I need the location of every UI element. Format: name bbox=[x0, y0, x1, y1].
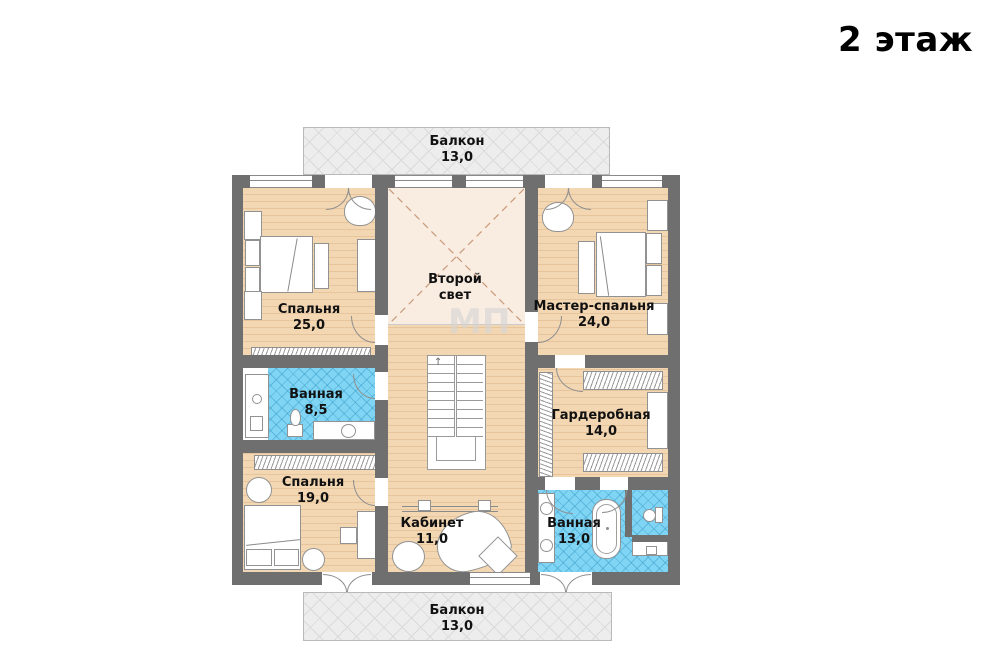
door-opening bbox=[555, 355, 585, 368]
wall bbox=[625, 490, 632, 537]
door-opening bbox=[600, 477, 628, 490]
wall bbox=[592, 572, 680, 585]
nightstand bbox=[647, 200, 668, 231]
wall bbox=[243, 440, 375, 453]
wall bbox=[525, 342, 538, 355]
room-label-balcony-top: Балкон 13,0 bbox=[430, 134, 485, 166]
bed-pillow bbox=[246, 549, 272, 566]
stool bbox=[302, 548, 325, 571]
toilet bbox=[655, 507, 663, 523]
room-name: Спальня bbox=[282, 475, 344, 491]
room-name: Спальня bbox=[278, 302, 340, 318]
bed-pillow bbox=[245, 240, 260, 266]
wall bbox=[232, 175, 243, 585]
washer bbox=[250, 416, 263, 431]
room-area: 19,0 bbox=[282, 491, 344, 507]
room-label-bathroom-85: Ванная 8,5 bbox=[289, 387, 343, 419]
bench bbox=[314, 243, 329, 289]
wall bbox=[375, 345, 388, 355]
room-name: Ванная bbox=[547, 516, 601, 532]
stairs-up-arrow-icon: ↑ bbox=[434, 357, 442, 368]
stair-flight bbox=[428, 356, 455, 437]
wall bbox=[538, 477, 545, 490]
stair-flight bbox=[456, 356, 483, 437]
room-label-wardrobe: Гардеробная 14,0 bbox=[551, 408, 650, 440]
shower-head bbox=[646, 546, 657, 555]
wall bbox=[525, 368, 538, 572]
wall bbox=[530, 572, 540, 585]
wall bbox=[243, 355, 388, 368]
bathtub-drain bbox=[606, 527, 609, 530]
door-opening bbox=[375, 372, 388, 400]
bed-pillow bbox=[646, 233, 662, 264]
wall bbox=[372, 175, 395, 188]
window bbox=[470, 572, 530, 585]
room-name: Балкон bbox=[430, 603, 485, 619]
room-area: 13,0 bbox=[547, 532, 601, 548]
stair-landing bbox=[436, 437, 476, 461]
shelf-bracket bbox=[418, 500, 431, 511]
boiler-dial bbox=[252, 394, 262, 404]
room-label-second-light: Второй свет bbox=[428, 272, 482, 304]
bed-pillow bbox=[245, 267, 260, 293]
room-area: 13,0 bbox=[430, 150, 485, 166]
room-label-balcony-bottom: Балкон 13,0 bbox=[430, 603, 485, 635]
staircase: ↑ bbox=[427, 355, 486, 470]
page-title: 2 этаж bbox=[838, 20, 973, 60]
wall bbox=[575, 477, 600, 490]
wall bbox=[232, 572, 322, 585]
wall bbox=[668, 175, 680, 585]
bed bbox=[260, 236, 313, 293]
watermark: МП bbox=[448, 302, 510, 342]
room-name: Гардеробная bbox=[551, 408, 650, 424]
room-area: 25,0 bbox=[278, 318, 340, 334]
shelf-bracket bbox=[478, 500, 491, 511]
pouf bbox=[246, 477, 272, 503]
room-area: 14,0 bbox=[551, 424, 650, 440]
nightstand bbox=[244, 291, 262, 320]
boiler-unit bbox=[245, 374, 269, 438]
window bbox=[395, 175, 452, 188]
floor-plan: 2 этаж МП МП bbox=[0, 0, 1000, 667]
wardrobe-rail bbox=[254, 455, 382, 470]
wall bbox=[375, 506, 388, 572]
bed-pillow bbox=[274, 549, 299, 566]
toilet-bowl bbox=[643, 509, 656, 522]
room-label-bedroom-19: Спальня 19,0 bbox=[282, 475, 344, 507]
wardrobe-rail bbox=[583, 453, 663, 472]
room-area: 24,0 bbox=[534, 315, 655, 331]
wall bbox=[592, 175, 602, 188]
sink bbox=[341, 424, 356, 438]
door-opening bbox=[375, 315, 388, 345]
wall bbox=[372, 572, 470, 585]
room-name: Балкон bbox=[430, 134, 485, 150]
wall bbox=[523, 175, 545, 188]
wall bbox=[585, 355, 668, 368]
door-opening bbox=[325, 175, 372, 188]
bed-pillow bbox=[646, 265, 662, 296]
door-opening bbox=[545, 477, 575, 490]
room-area: 8,5 bbox=[289, 403, 343, 419]
wardrobe-rail bbox=[583, 371, 663, 390]
window bbox=[466, 175, 523, 188]
dresser bbox=[357, 239, 377, 292]
wall bbox=[375, 400, 388, 478]
wall bbox=[452, 175, 466, 188]
bench bbox=[578, 241, 595, 294]
window bbox=[250, 175, 312, 188]
window bbox=[602, 175, 662, 188]
wall bbox=[525, 188, 538, 312]
room-name: Ванная bbox=[289, 387, 343, 403]
room-label-master-bedroom: Мастер-спальня 24,0 bbox=[534, 299, 655, 331]
room-area: 11,0 bbox=[401, 532, 464, 548]
room-label-bedroom-25: Спальня 25,0 bbox=[278, 302, 340, 334]
room-label-bathroom-13: Ванная 13,0 bbox=[547, 516, 601, 548]
door-opening bbox=[545, 175, 592, 188]
wall bbox=[628, 477, 668, 490]
room-area: 13,0 bbox=[430, 619, 485, 635]
door-opening bbox=[375, 478, 388, 506]
room-label-office: Кабинет 11,0 bbox=[401, 516, 464, 548]
room-name: Мастер-спальня bbox=[534, 299, 655, 315]
wall bbox=[632, 535, 668, 542]
room-name: Кабинет bbox=[401, 516, 464, 532]
wall bbox=[525, 355, 555, 368]
desk-chair bbox=[340, 527, 357, 544]
room-name: свет bbox=[428, 288, 482, 304]
wall bbox=[312, 175, 325, 188]
room-name: Второй bbox=[428, 272, 482, 288]
wall bbox=[375, 188, 388, 315]
